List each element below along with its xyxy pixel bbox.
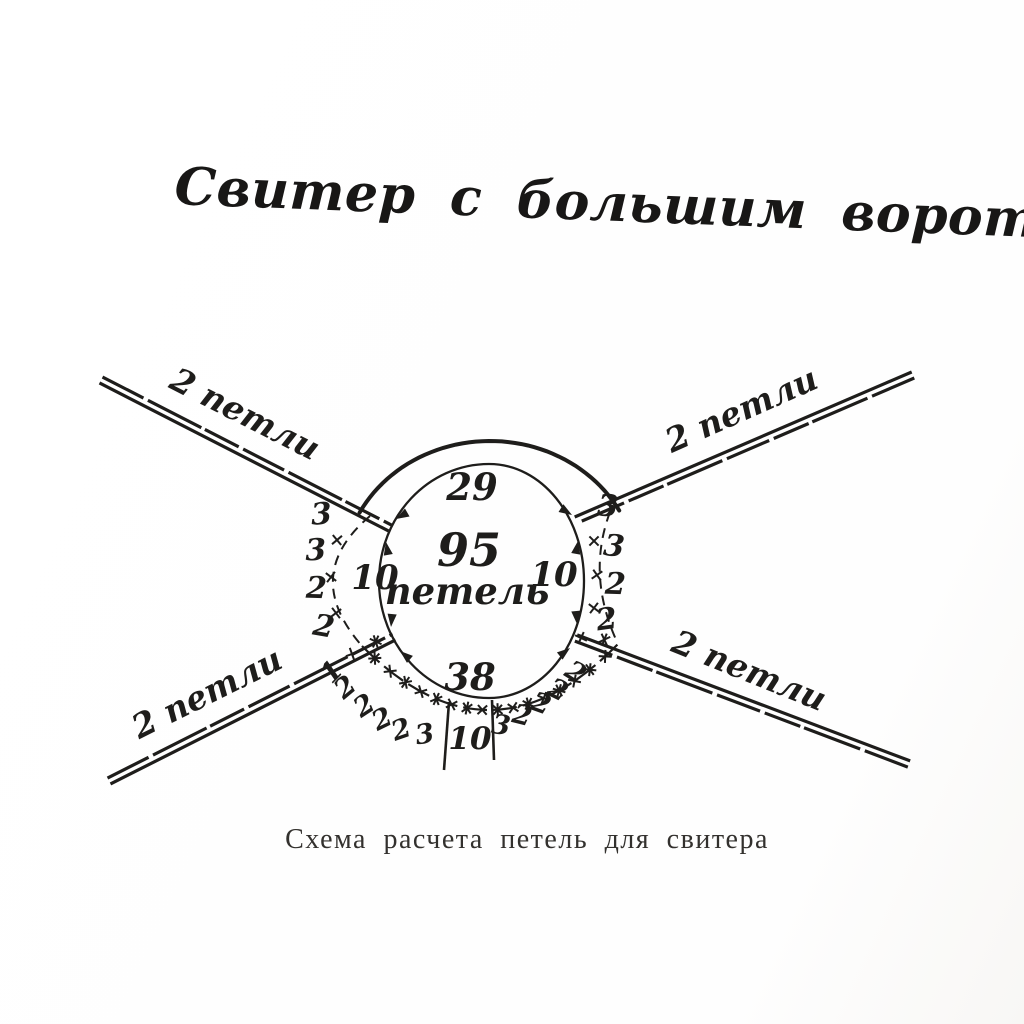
- left-decrease-count: 3: [305, 533, 327, 569]
- right-decrease-count: 2: [603, 567, 626, 603]
- bottom-arc-count: 38: [444, 655, 496, 699]
- bottom-left-decrease-count: 3: [413, 718, 436, 752]
- knitting-diagram: 2222332222122332233 29 95 петель 10 10 3…: [0, 0, 1024, 1024]
- right-arc-count: 10: [530, 555, 578, 595]
- right-decrease-count: 3: [602, 528, 626, 565]
- stitch-cross-mark: [404, 676, 407, 689]
- left-arc-count: 10: [351, 558, 399, 598]
- stitch-cross-mark: [326, 573, 336, 581]
- bottom-center-count: 10: [448, 721, 492, 757]
- total-stitches-unit: петель: [385, 569, 550, 613]
- top-arc-count: 29: [445, 465, 498, 509]
- figure-caption: Схема расчета петель для свитера: [285, 824, 769, 856]
- ray-label-bottom-right: 2 петли: [666, 621, 832, 718]
- left-decrease-count: 2: [309, 607, 337, 645]
- ray-label-bottom-left: 2 петли: [125, 639, 289, 747]
- right-decrease-count: 2: [593, 601, 620, 639]
- left-decrease-count: 2: [304, 571, 327, 607]
